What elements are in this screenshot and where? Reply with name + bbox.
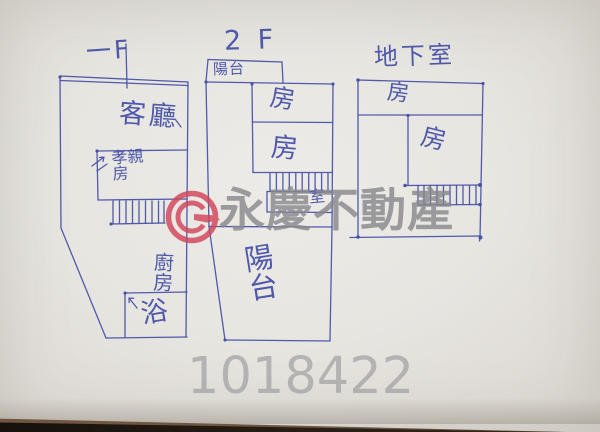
floor1-corner-arrow [129,298,137,308]
label-living-room: 客廳 [118,100,180,131]
label-basement-room-front: 房 [386,82,411,107]
label-parents-room: 孝親房 [111,148,157,183]
watermark-brand-text: 永慶不動產 [219,187,454,233]
label-upper-balcony: 陽台 [213,61,246,77]
label-bath: 浴 [139,297,170,328]
floorplan-photo: 一F 客廳 孝親房 廚房 浴 2 F 陽台 房 房 室 陽台 地下室 房 房 永… [0,0,600,432]
paper-edge-shadow [0,398,600,424]
serial-number: 1018422 [187,351,414,402]
floor1-title: 一F [85,36,132,64]
watermark-logo-icon [164,190,224,248]
floor2-title: 2 F [224,26,278,55]
basement-title: 地下室 [374,43,456,70]
label-room-mid: 房 [270,134,299,163]
label-kitchen: 廚房 [151,252,173,299]
label-room-top: 房 [268,84,297,113]
floor1-stairs-hatch [113,201,164,223]
floor1-entry-arrow [92,157,107,171]
